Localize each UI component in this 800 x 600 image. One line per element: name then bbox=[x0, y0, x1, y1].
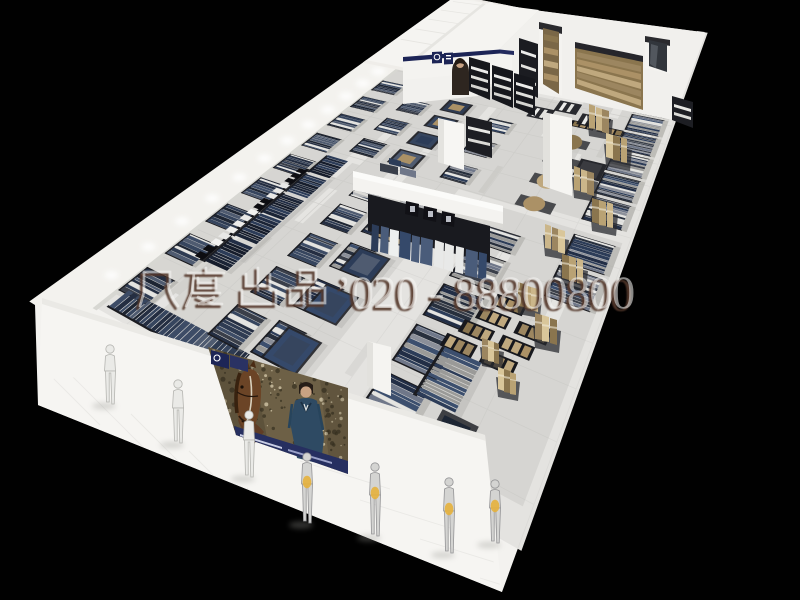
svg-text:’020 - 88800800: ’020 - 88800800 bbox=[336, 267, 634, 319]
